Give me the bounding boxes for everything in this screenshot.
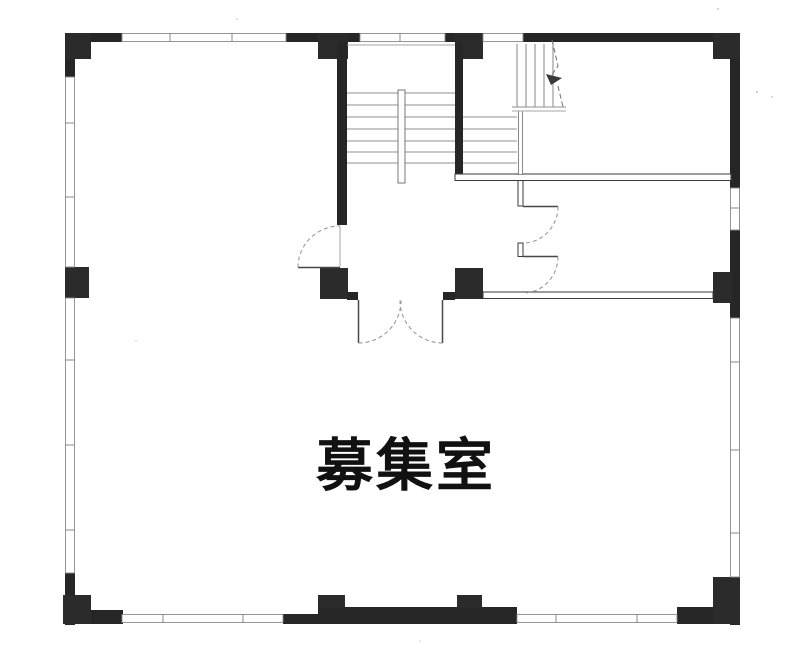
room-door-1 — [523, 207, 558, 244]
stair-handrail — [398, 90, 405, 183]
stair-direction-arrow-icon — [546, 40, 563, 107]
floor-plan: 募集室 — [0, 0, 787, 658]
stairwell-door — [298, 226, 340, 268]
scan-speckles — [135, 8, 773, 642]
partition-walls — [455, 111, 731, 299]
room-label: 募集室 — [315, 434, 496, 498]
entrance-double-door — [359, 300, 443, 343]
room-door-2 — [523, 257, 558, 294]
